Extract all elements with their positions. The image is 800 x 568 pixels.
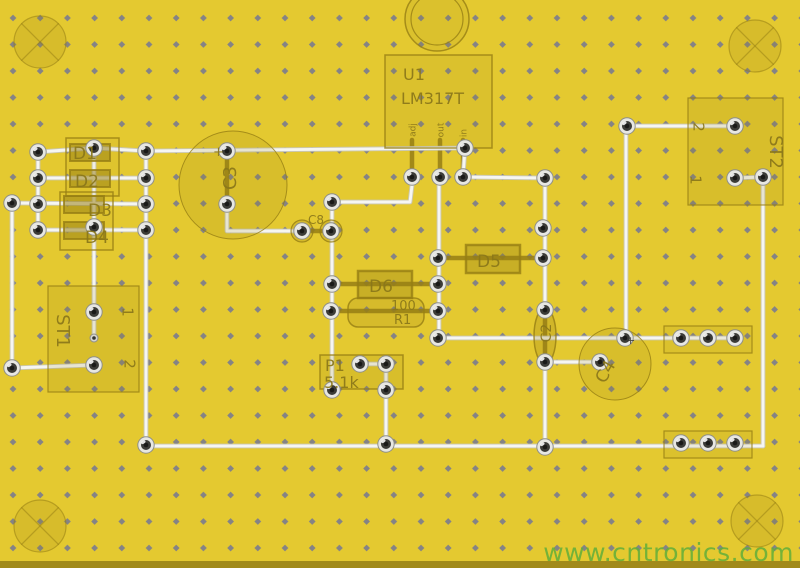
- solder-pad: [404, 169, 420, 185]
- solder-pad: [4, 360, 20, 376]
- solder-pad: [138, 143, 154, 159]
- solder-pad: [755, 169, 771, 185]
- mounting-hole: [14, 500, 66, 552]
- trace: [463, 177, 545, 178]
- solder-pad: [324, 276, 340, 292]
- label-d1: D1: [73, 144, 97, 164]
- solder-pad: [619, 118, 635, 134]
- solder-pad: [86, 357, 102, 373]
- solder-pad: [30, 222, 46, 238]
- solder-pad: [430, 303, 446, 319]
- solder-pad: [323, 303, 339, 319]
- label-u1-pin-in: in: [460, 129, 470, 137]
- solder-pad: [700, 330, 716, 346]
- solder-pad: [537, 302, 553, 318]
- solder-pad: [430, 276, 446, 292]
- label-c3: C3: [220, 166, 241, 190]
- solder-pad: [30, 144, 46, 160]
- solder-pad: [727, 435, 743, 451]
- solder-pad: [537, 354, 553, 370]
- via: [90, 334, 98, 342]
- label-st2-pin1: 1: [687, 175, 705, 185]
- solder-pad: [430, 330, 446, 346]
- solder-pad: [700, 435, 716, 451]
- label-d2: D2: [75, 172, 99, 192]
- board-bottom-edge: [0, 561, 800, 568]
- solder-pad: [673, 330, 689, 346]
- solder-pad: [673, 435, 689, 451]
- solder-pad: [535, 220, 551, 236]
- label-st2-pin2: 2: [690, 122, 708, 132]
- mounting-hole: [729, 20, 781, 72]
- solder-pad: [138, 196, 154, 212]
- solder-pad: [727, 330, 743, 346]
- solder-pad: [86, 304, 102, 320]
- cap-c4-outline: [579, 328, 651, 400]
- label-c3-polarity: +: [213, 145, 224, 160]
- solder-pad: [30, 170, 46, 186]
- pcb-board-canvas: D1D2D3D4C3+C8U1LM317TadjoutinD5D6100R1P1…: [0, 0, 800, 568]
- solder-pad: [727, 118, 743, 134]
- label-u1-part: LM317T: [401, 89, 464, 108]
- solder-pad: [432, 169, 448, 185]
- label-d5: D5: [477, 252, 501, 272]
- label-u1: U1: [403, 65, 425, 84]
- label-c2: C2: [539, 324, 555, 343]
- label-r1-value: 100: [391, 299, 416, 314]
- solder-pad: [457, 140, 473, 156]
- solder-pad: [537, 170, 553, 186]
- solder-pad: [138, 170, 154, 186]
- solder-pad: [352, 356, 368, 372]
- solder-pad: [430, 250, 446, 266]
- solder-pad: [138, 222, 154, 238]
- solder-pad: [4, 195, 20, 211]
- label-r1: R1: [394, 313, 411, 328]
- solder-pad: [455, 169, 471, 185]
- label-p1-value: 5.1k: [324, 373, 359, 392]
- label-d4: D4: [85, 228, 109, 248]
- label-c8: C8: [308, 213, 324, 227]
- solder-pad: [537, 439, 553, 455]
- label-d3: D3: [88, 201, 112, 221]
- mounting-hole: [731, 495, 783, 547]
- label-u1-pin-out: out: [437, 122, 447, 137]
- ic-u1-tab-inner: [411, 0, 463, 45]
- label-st1-pin2: 2: [121, 359, 139, 369]
- label-st1-pin1: 1: [119, 307, 137, 317]
- solder-pad: [323, 223, 339, 239]
- label-d6: D6: [369, 277, 393, 297]
- mounting-hole: [14, 16, 66, 68]
- solder-pad: [535, 250, 551, 266]
- label-c4-polarity: +: [626, 334, 635, 347]
- solder-pad: [324, 194, 340, 210]
- solder-pad: [378, 356, 394, 372]
- solder-pad: [727, 170, 743, 186]
- solder-pad: [378, 382, 394, 398]
- solder-pad: [219, 196, 235, 212]
- label-u1-pin-adj: adj: [409, 123, 419, 137]
- label-st2: ST2: [765, 135, 786, 169]
- solder-pad: [30, 196, 46, 212]
- pcb-board: D1D2D3D4C3+C8U1LM317TadjoutinD5D6100R1P1…: [0, 0, 800, 568]
- solder-pad: [138, 437, 154, 453]
- solder-pad: [378, 436, 394, 452]
- label-st1: ST1: [52, 314, 73, 348]
